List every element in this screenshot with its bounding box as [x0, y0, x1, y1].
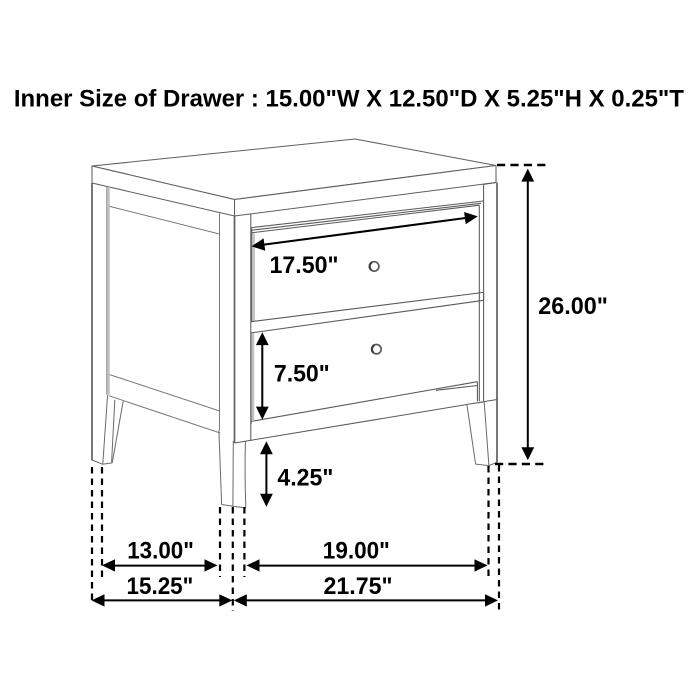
svg-text:26.00": 26.00" [538, 293, 608, 320]
svg-text:19.00": 19.00" [323, 538, 390, 565]
svg-text:17.50": 17.50" [270, 252, 339, 279]
svg-text:21.75": 21.75" [324, 573, 393, 600]
svg-text:4.25": 4.25" [277, 465, 333, 492]
svg-text:Inner Size of Drawer : 15.00"W: Inner Size of Drawer : 15.00"W X 12.50"D… [14, 85, 684, 112]
svg-text:7.50": 7.50" [274, 361, 330, 388]
svg-text:15.25": 15.25" [127, 573, 194, 600]
svg-text:13.00": 13.00" [127, 538, 194, 565]
